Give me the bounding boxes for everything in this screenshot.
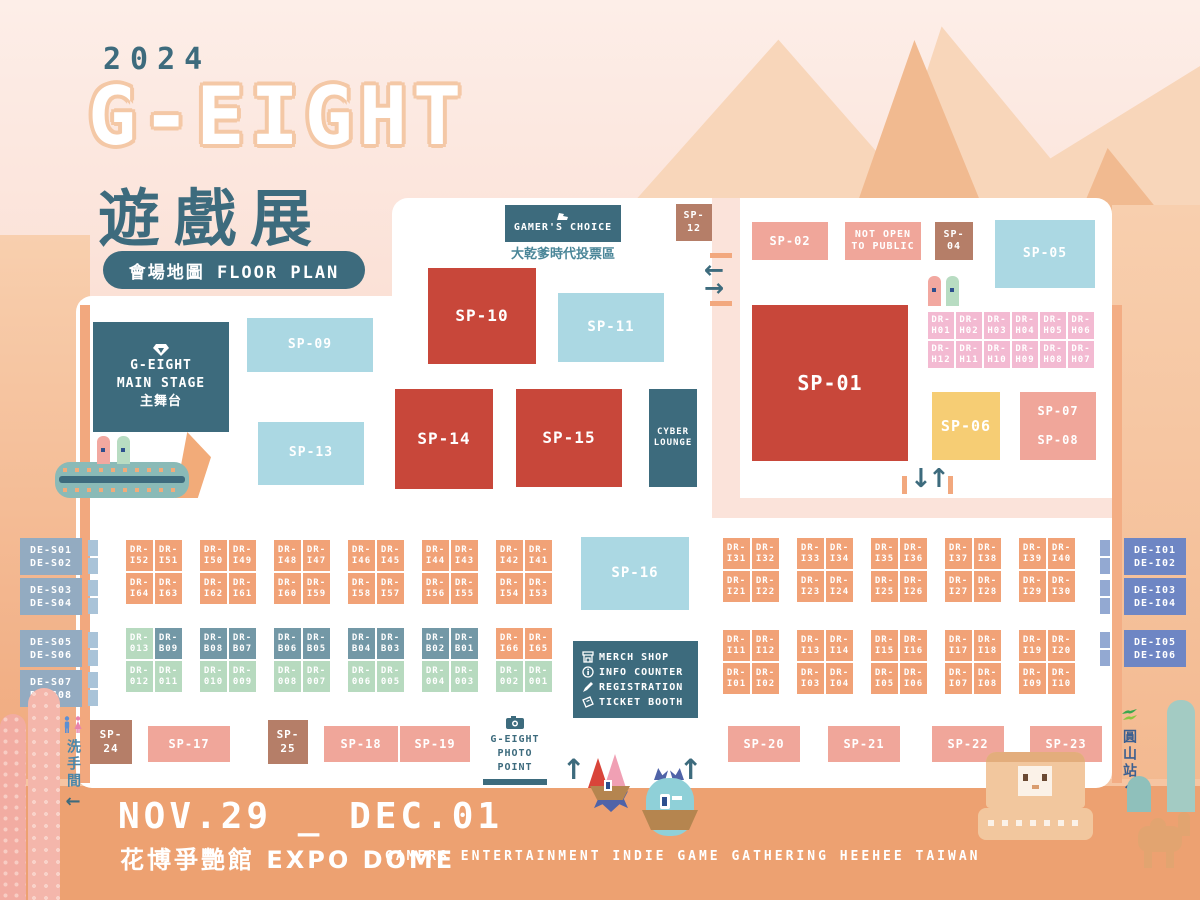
booth-pair-column: DR-B04DR-B03DR-006DR-005 <box>348 628 404 692</box>
restroom-direction-arrow-icon: ← <box>58 793 88 811</box>
booth-cell: DR-I27 <box>945 571 972 602</box>
booth-sp-07-08: SP-07SP-08 <box>1020 392 1096 460</box>
booth-pair-column: DR-I66DR-I65DR-002DR-001 <box>496 628 552 692</box>
hall-divider-vertical <box>712 198 740 518</box>
booth-pair-column: DR-I35DR-I36DR-I25DR-I26 <box>871 538 927 602</box>
legend-item: REGISTRATION <box>582 681 698 693</box>
booth-cell: DR-I33 <box>797 538 824 569</box>
main-stage-area: G-EIGHT MAIN STAGE 主舞台 <box>93 322 229 432</box>
door-marker <box>88 650 98 666</box>
booth-cell: DR-001 <box>525 661 552 692</box>
booth-cell: DR-I18 <box>974 630 1001 661</box>
de-booth-box: DE-S01DE-S02 <box>20 538 82 575</box>
booth-cell: DR-B05 <box>303 628 330 659</box>
door-marker <box>1100 558 1110 574</box>
passage-marker <box>948 476 953 494</box>
booth-cell: DR-008 <box>274 661 301 692</box>
booth-cell: DR-006 <box>348 661 375 692</box>
cyber-lounge-area: CYBERLOUNGE <box>649 389 697 487</box>
camera-icon <box>506 716 524 729</box>
booth-cell: DR-B08 <box>200 628 227 659</box>
booth-sp-14: SP-14 <box>395 389 493 489</box>
cactus-decoration <box>1127 700 1200 830</box>
flag-icon <box>556 212 570 221</box>
booth-pair-column: DR-I33DR-I34DR-I23DR-I24 <box>797 538 853 602</box>
booth-cell: DR-H03 <box>984 312 1010 339</box>
booth-cell: DR-I13 <box>797 630 824 661</box>
booth-pair-column: DR-I50DR-I49DR-I62DR-I61 <box>200 540 256 604</box>
booth-cell: DR-I40 <box>1048 538 1075 569</box>
event-logo-chinese: 遊戲展 <box>98 168 326 258</box>
booth-cell: DR-I14 <box>826 630 853 661</box>
booth-cell: DR-I53 <box>525 573 552 604</box>
event-logo: G-EIGHT <box>88 70 467 163</box>
booth-cell: DR-H09 <box>1012 341 1038 368</box>
photo-point-area: G-EIGHTPHOTO POINT <box>478 714 552 785</box>
booth-pair-column: DR-I19DR-I20DR-I09DR-I10 <box>1019 630 1075 694</box>
booth-cell: DR-005 <box>377 661 404 692</box>
door-marker <box>1100 632 1110 648</box>
booth-sp-11: SP-11 <box>558 293 664 362</box>
floor-plan-poster: 2024 G-EIGHT 遊戲展 會場地圖 FLOOR PLAN GAMER'S… <box>0 0 1200 900</box>
de-booth-box: DE-I05DE-I06 <box>1124 630 1186 667</box>
booth-cell: DR-I49 <box>229 540 256 571</box>
booth-pair-column: DR-I46DR-I45DR-I58DR-I57 <box>348 540 404 604</box>
booth-sp-09: SP-09 <box>247 318 373 372</box>
info-icon <box>582 666 594 678</box>
booth-cell: DR-I07 <box>945 663 972 694</box>
door-marker <box>88 580 98 596</box>
dr-block-left-bottom: DR-013DR-B09DR-012DR-011DR-B08DR-B07DR-0… <box>126 628 552 692</box>
dr-block-left-top: DR-I52DR-I51DR-I64DR-I63DR-I50DR-I49DR-I… <box>126 540 552 604</box>
booth-cell: DR-B01 <box>451 628 478 659</box>
booth-cell: DR-I39 <box>1019 538 1046 569</box>
floor-plan-badge: 會場地圖 FLOOR PLAN <box>103 251 365 289</box>
restroom-sign: 洗手間 ← <box>58 716 88 811</box>
booth-cell: DR-I04 <box>826 663 853 694</box>
booth-sp-13: SP-13 <box>258 422 364 485</box>
booth-cell: DR-007 <box>303 661 330 692</box>
door-marker <box>88 540 98 556</box>
booth-pair-column: DR-I39DR-I40DR-I29DR-I30 <box>1019 538 1075 602</box>
ticket-icon <box>582 696 594 708</box>
booth-sp-19: SP-19 <box>400 726 470 762</box>
booth-sp-15: SP-15 <box>516 389 622 487</box>
booth-cell: DR-I23 <box>797 571 824 602</box>
booth-cell: DR-I02 <box>752 663 779 694</box>
right-arrow-icon: → <box>704 276 724 300</box>
booth-cell: DR-B09 <box>155 628 182 659</box>
gem-icon <box>153 344 169 356</box>
booth-cell: DR-B04 <box>348 628 375 659</box>
booth-sp-20: SP-20 <box>728 726 800 762</box>
booth-cell: DR-I65 <box>525 628 552 659</box>
sphinx-decoration <box>978 752 1093 847</box>
booth-cell: DR-I56 <box>422 573 449 604</box>
booth-pair-column: DR-I17DR-I18DR-I07DR-I08 <box>945 630 1001 694</box>
booth-cell: DR-H02 <box>956 312 982 339</box>
booth-pair-column: DR-I15DR-I16DR-I05DR-I06 <box>871 630 927 694</box>
dr-h-booth-grid: DR-H01DR-H02DR-H03DR-H04DR-H05DR-H06DR-H… <box>928 312 1094 368</box>
booth-cell: DR-I46 <box>348 540 375 571</box>
legend-item: MERCH SHOP <box>582 651 698 663</box>
booth-sp-01: SP-01 <box>752 305 908 461</box>
booth-cell: DR-002 <box>496 661 523 692</box>
booth-cell: DR-I12 <box>752 630 779 661</box>
booth-cell: DR-I35 <box>871 538 898 569</box>
booth-cell: DR-I48 <box>274 540 301 571</box>
tent-character-decoration <box>946 276 959 306</box>
booth-pair-column: DR-B02DR-B01DR-004DR-003 <box>422 628 478 692</box>
booth-pair-column: DR-I44DR-I43DR-I56DR-I55 <box>422 540 478 604</box>
booth-cell: DR-I61 <box>229 573 256 604</box>
de-booth-box: DE-I03DE-I04 <box>1124 578 1186 615</box>
booth-cell: DR-I55 <box>451 573 478 604</box>
booth-pair-column: DR-B08DR-B07DR-010DR-009 <box>200 628 256 692</box>
door-marker <box>88 558 98 574</box>
booth-cell: DR-I50 <box>200 540 227 571</box>
booth-cell: DR-I11 <box>723 630 750 661</box>
legend-item: TICKET BOOTH <box>582 696 698 708</box>
booth-cell: DR-B06 <box>274 628 301 659</box>
legend-item: INFO COUNTER <box>582 666 698 678</box>
booth-cell: DR-I21 <box>723 571 750 602</box>
booth-sp-04: SP-04 <box>935 222 973 260</box>
booth-cell: DR-I51 <box>155 540 182 571</box>
door-marker <box>1100 540 1110 556</box>
booth-cell: DR-H06 <box>1068 312 1094 339</box>
booth-cell: DR-011 <box>155 661 182 692</box>
booth-cell: DR-I36 <box>900 538 927 569</box>
booth-pair-column: DR-I31DR-I32DR-I21DR-I22 <box>723 538 779 602</box>
booth-cell: DR-010 <box>200 661 227 692</box>
booth-sp-16: SP-16 <box>581 537 689 610</box>
booth-cell: DR-I30 <box>1048 571 1075 602</box>
gamers-choice-area: GAMER'S CHOICE <box>505 205 621 242</box>
booth-cell: DR-013 <box>126 628 153 659</box>
booth-cell: DR-004 <box>422 661 449 692</box>
door-marker <box>1100 580 1110 596</box>
booth-cell: DR-I09 <box>1019 663 1046 694</box>
dr-block-right-top: DR-I31DR-I32DR-I21DR-I22DR-I33DR-I34DR-I… <box>723 538 1075 602</box>
booth-cell: DR-I59 <box>303 573 330 604</box>
booth-pair-column: DR-I11DR-I12DR-I01DR-I02 <box>723 630 779 694</box>
booth-sp-18: SP-18 <box>324 726 398 762</box>
booth-pair-column: DR-I52DR-I51DR-I64DR-I63 <box>126 540 182 604</box>
booth-cell: DR-I10 <box>1048 663 1075 694</box>
booth-cell: DR-I22 <box>752 571 779 602</box>
booth-cell: DR-009 <box>229 661 256 692</box>
booth-cell: DR-B07 <box>229 628 256 659</box>
booth-sp-21: SP-21 <box>828 726 900 762</box>
booth-cell: DR-H07 <box>1068 341 1094 368</box>
dr-block-right-bottom: DR-I11DR-I12DR-I01DR-I02DR-I13DR-I14DR-I… <box>723 630 1075 694</box>
booth-cell: DR-I45 <box>377 540 404 571</box>
booth-cell: DR-I64 <box>126 573 153 604</box>
booth-cell: DR-I37 <box>945 538 972 569</box>
gamers-choice-subtitle: 大乾爹時代投票區 <box>497 243 629 262</box>
booth-cell: DR-B03 <box>377 628 404 659</box>
booth-cell: DR-H12 <box>928 341 954 368</box>
de-booth-box: DE-I01DE-I02 <box>1124 538 1186 575</box>
booth-sp-24: SP-24 <box>90 720 132 764</box>
booth-cell: DR-I41 <box>525 540 552 571</box>
merch-shop-icon <box>582 651 594 663</box>
booth-cell: DR-I34 <box>826 538 853 569</box>
restroom-label: 洗手間 <box>63 739 83 790</box>
booth-cell: DR-I43 <box>451 540 478 571</box>
booth-pair-column: DR-013DR-B09DR-012DR-011 <box>126 628 182 692</box>
booth-cell: DR-I44 <box>422 540 449 571</box>
booth-cell: DR-I25 <box>871 571 898 602</box>
booth-cell: DR-I20 <box>1048 630 1075 661</box>
booth-cell: DR-I29 <box>1019 571 1046 602</box>
booth-cell: DR-I26 <box>900 571 927 602</box>
restroom-icon <box>62 716 84 733</box>
booth-cell: DR-I19 <box>1019 630 1046 661</box>
passage-marker <box>902 476 907 494</box>
booth-cell: DR-I57 <box>377 573 404 604</box>
booth-cell: DR-I17 <box>945 630 972 661</box>
mascot-decoration <box>578 752 642 818</box>
pencil-icon <box>582 681 594 693</box>
event-dates: NOV.29 _ DEC.01 <box>118 796 503 837</box>
door-marker <box>1100 598 1110 614</box>
booth-sp-17: SP-17 <box>148 726 230 762</box>
booth-cell: DR-H11 <box>956 341 982 368</box>
booth-cell: DR-I08 <box>974 663 1001 694</box>
booth-cell: DR-I03 <box>797 663 824 694</box>
booth-cell: DR-H01 <box>928 312 954 339</box>
booth-cell: DR-I38 <box>974 538 1001 569</box>
booth-cell: DR-I05 <box>871 663 898 694</box>
booth-cell: DR-B02 <box>422 628 449 659</box>
pink-cactus-decoration <box>0 688 62 900</box>
booth-sp-05: SP-05 <box>995 220 1095 288</box>
booth-sp-25: SP-25 <box>268 720 308 764</box>
booth-cell: DR-I15 <box>871 630 898 661</box>
passage-marker <box>710 301 732 306</box>
mascot-decoration <box>642 768 700 846</box>
booth-cell: DR-003 <box>451 661 478 692</box>
booth-cell: DR-I28 <box>974 571 1001 602</box>
booth-cell: DR-I60 <box>274 573 301 604</box>
booth-cell: DR-I52 <box>126 540 153 571</box>
de-booth-box: DE-S03DE-S04 <box>20 578 82 615</box>
booth-cell: DR-H05 <box>1040 312 1066 339</box>
booth-cell: DR-I32 <box>752 538 779 569</box>
door-marker <box>88 690 98 706</box>
booth-sp-06: SP-06 <box>932 392 1000 460</box>
booth-pair-column: DR-I13DR-I14DR-I03DR-I04 <box>797 630 853 694</box>
booth-cell: DR-I66 <box>496 628 523 659</box>
booth-pair-column: DR-B06DR-B05DR-008DR-007 <box>274 628 330 692</box>
booth-cell: DR-I24 <box>826 571 853 602</box>
booth-cell: DR-I06 <box>900 663 927 694</box>
booth-cell: DR-I47 <box>303 540 330 571</box>
booth-sp-10: SP-10 <box>428 268 536 364</box>
map-legend: MERCH SHOP INFO COUNTER REGISTRATION TIC… <box>573 641 698 718</box>
tent-character-decoration <box>928 276 941 306</box>
booth-cell: DR-H10 <box>984 341 1010 368</box>
booth-sp-12: SP-12 <box>676 204 712 241</box>
booth-cell: DR-012 <box>126 661 153 692</box>
booth-pair-column: DR-I37DR-I38DR-I27DR-I28 <box>945 538 1001 602</box>
booth-cell: DR-H08 <box>1040 341 1066 368</box>
booth-cell: DR-I42 <box>496 540 523 571</box>
booth-cell: DR-I62 <box>200 573 227 604</box>
booth-cell: DR-I63 <box>155 573 182 604</box>
door-marker <box>88 598 98 614</box>
door-marker <box>88 632 98 648</box>
event-tagline: GAMERS ENTERTAINMENT INDIE GAME GATHERIN… <box>385 849 980 864</box>
not-open-area: NOT OPENTO PUBLIC <box>845 222 921 260</box>
door-marker <box>88 672 98 688</box>
booth-cell: DR-I54 <box>496 573 523 604</box>
booth-cell: DR-I58 <box>348 573 375 604</box>
booth-cell: DR-I31 <box>723 538 750 569</box>
booth-pair-column: DR-I48DR-I47DR-I60DR-I59 <box>274 540 330 604</box>
booth-cell: DR-I01 <box>723 663 750 694</box>
booth-pair-column: DR-I42DR-I41DR-I54DR-I53 <box>496 540 552 604</box>
booth-cell: DR-I16 <box>900 630 927 661</box>
hall-divider-horizontal <box>740 498 1112 518</box>
de-booth-box: DE-S05DE-S06 <box>20 630 82 667</box>
booth-sp-02: SP-02 <box>752 222 828 260</box>
up-arrow-icon: ↑ <box>928 466 950 492</box>
flying-carpet-decoration <box>55 430 210 506</box>
booth-cell: DR-H04 <box>1012 312 1038 339</box>
door-marker <box>1100 650 1110 666</box>
